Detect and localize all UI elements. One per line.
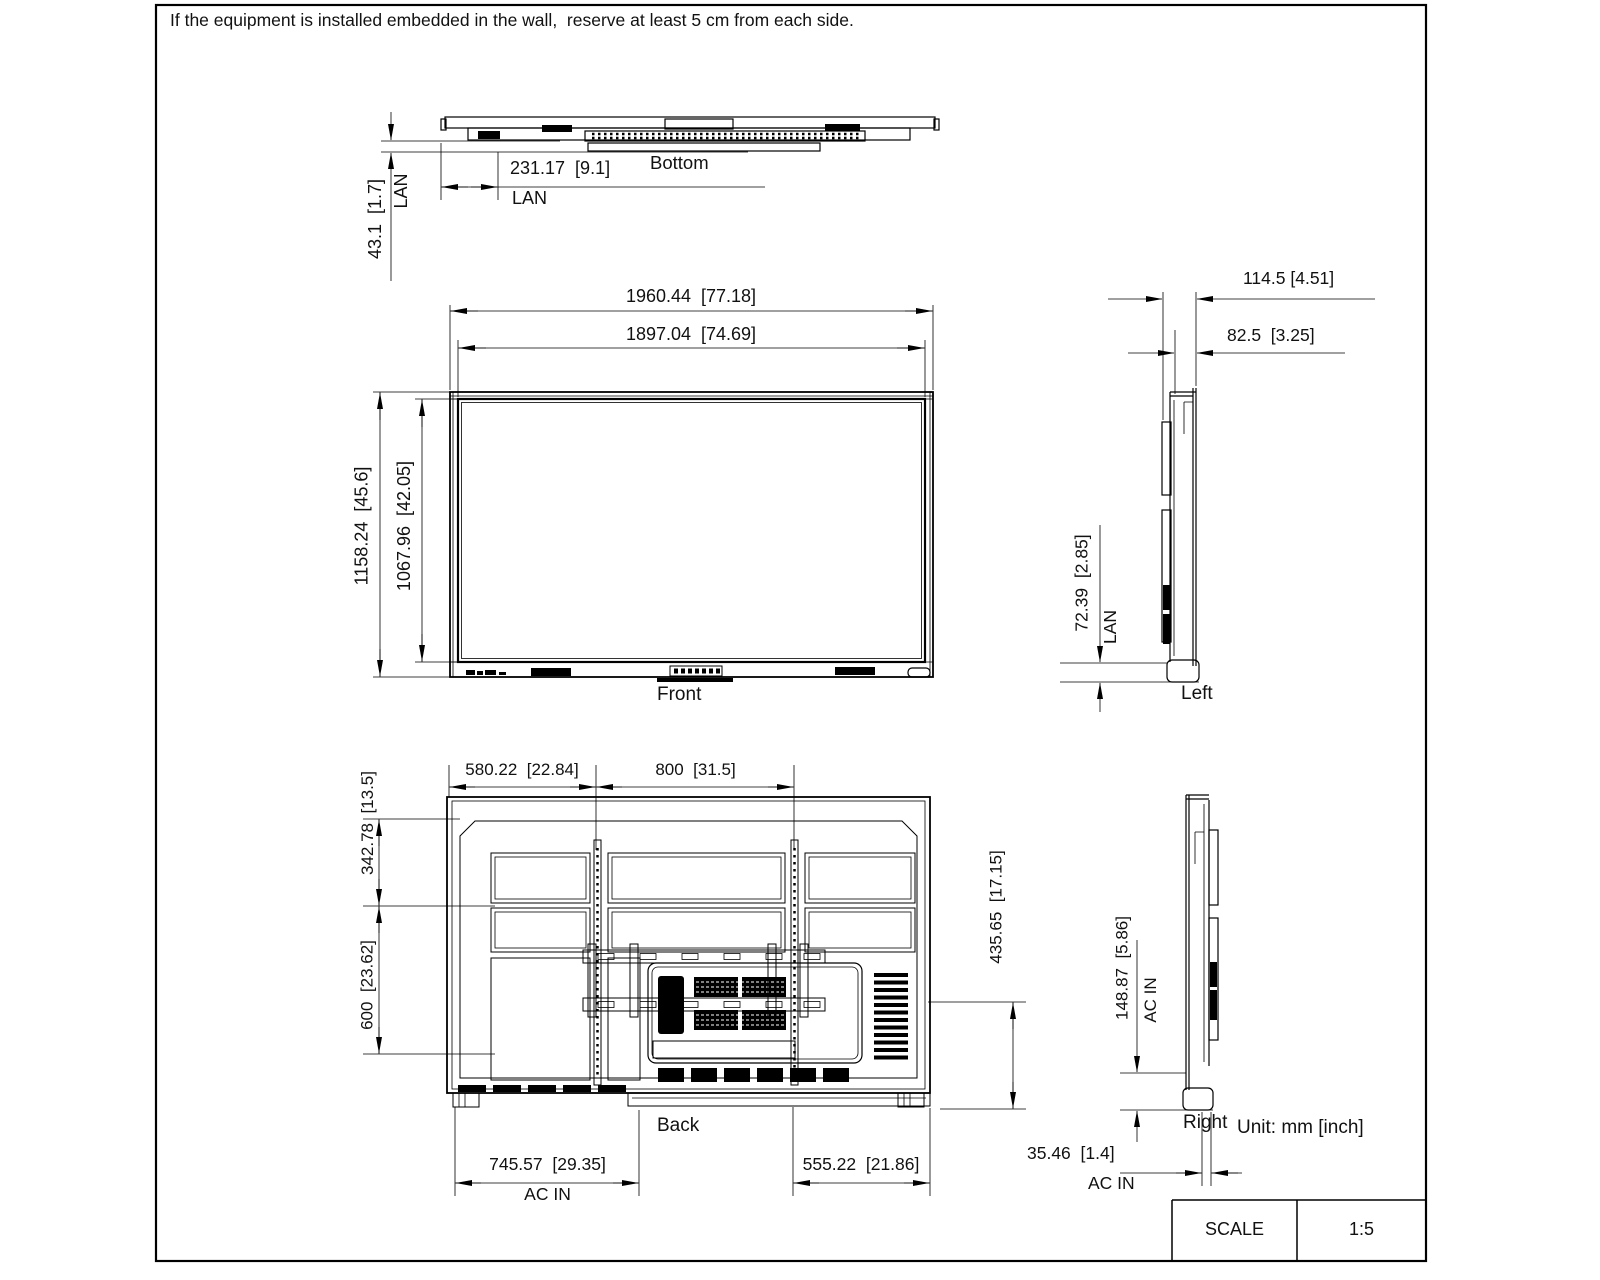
dim-right-acin-height-port: AC IN bbox=[1141, 976, 1163, 1024]
dim-left-body-depth: 82.5 [3.25] bbox=[1227, 325, 1315, 345]
dim-back-vesa-offset-left: 580.22 [22.84] bbox=[452, 760, 592, 780]
wall-install-note: If the equipment is installed embedded i… bbox=[170, 10, 854, 30]
dim-bottom-lan-height: 43.1 [1.7] bbox=[365, 174, 387, 264]
dim-right-acin-depth: 35.46 [1.4] bbox=[1027, 1143, 1115, 1163]
dim-left-total-depth: 114.5 [4.51] bbox=[1243, 268, 1334, 288]
dim-right-acin-height: 148.87 [5.86] bbox=[1113, 906, 1135, 1031]
dim-right-acin-depth-port: AC IN bbox=[1088, 1173, 1135, 1193]
scale-value-cell: 1:5 bbox=[1297, 1219, 1426, 1240]
scale-label-cell: SCALE bbox=[1172, 1219, 1297, 1240]
dim-bottom-lan-offset: 231.17 [9.1] bbox=[510, 158, 610, 179]
view-right-label: Right bbox=[1183, 1112, 1227, 1134]
dim-left-lan-height: 72.39 [2.85] bbox=[1072, 526, 1094, 641]
view-bottom-label: Bottom bbox=[650, 152, 709, 173]
view-front-label: Front bbox=[657, 684, 701, 706]
view-back-label: Back bbox=[657, 1115, 699, 1137]
dim-back-right-side-height: 435.65 [17.15] bbox=[987, 845, 1009, 970]
dim-back-acin-offset: 745.57 [29.35] bbox=[460, 1154, 635, 1174]
dim-back-vesa-width: 800 [31.5] bbox=[597, 760, 794, 780]
dim-front-outer-height: 1158.24 [45.6] bbox=[352, 459, 374, 594]
engineering-drawing bbox=[0, 0, 1600, 1280]
dim-back-acin-port: AC IN bbox=[460, 1184, 635, 1204]
dim-back-vesa-height: 600 [23.62] bbox=[358, 933, 380, 1038]
view-left-label: Left bbox=[1181, 683, 1213, 705]
dim-front-screen-height: 1067.96 [42.05] bbox=[394, 451, 416, 601]
dim-back-vesa-offset-top: 342.78 [13.5] bbox=[358, 763, 380, 883]
dim-bottom-lan-offset-port: LAN bbox=[512, 188, 547, 209]
dim-back-bottom-right-offset: 555.22 [21.86] bbox=[775, 1154, 947, 1174]
dim-left-lan-port: LAN bbox=[1100, 607, 1122, 647]
unit-note: Unit: mm [inch] bbox=[1237, 1117, 1364, 1139]
dim-front-screen-width: 1897.04 [74.69] bbox=[591, 324, 791, 345]
dim-front-outer-width: 1960.44 [77.18] bbox=[591, 286, 791, 307]
drawing-page: If the equipment is installed embedded i… bbox=[0, 0, 1600, 1280]
dim-bottom-lan-height-port: LAN bbox=[391, 171, 413, 211]
